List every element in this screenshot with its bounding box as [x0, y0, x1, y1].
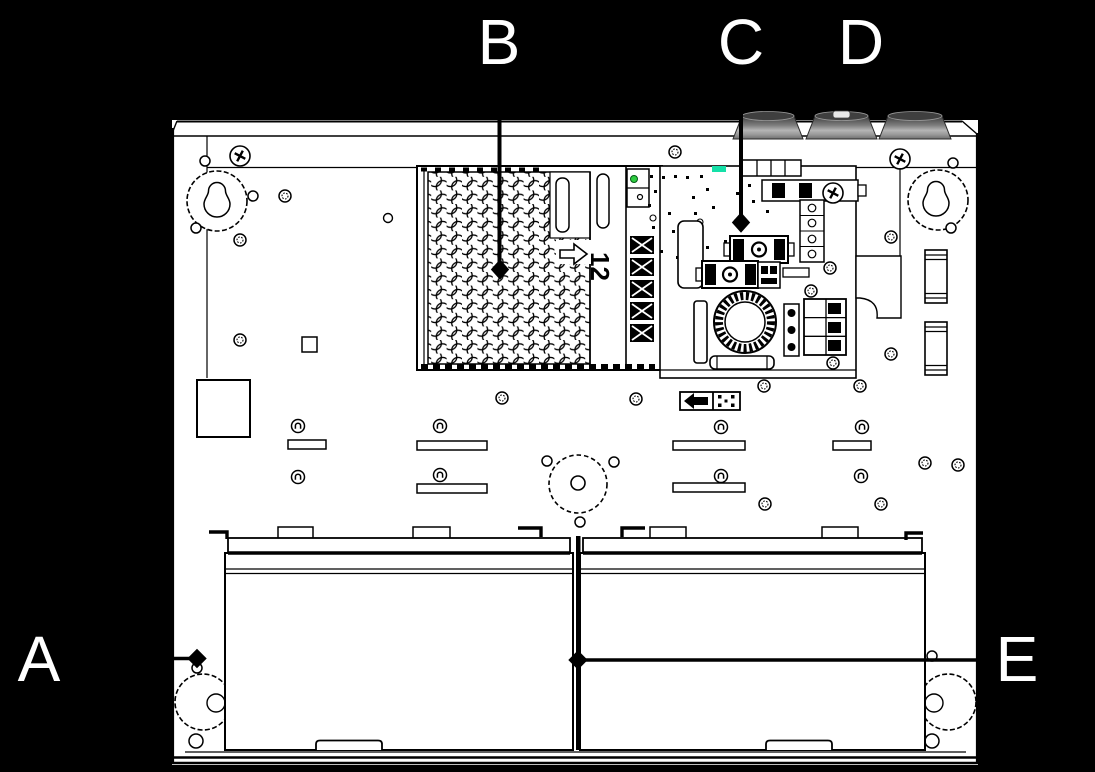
hole-icon	[946, 223, 956, 233]
screw-icon	[234, 334, 246, 346]
standoff-screw-icon	[856, 421, 869, 434]
standoff-screw-icon	[715, 470, 728, 483]
callout-label-a: A	[18, 627, 61, 691]
square-cutout-small	[302, 337, 317, 352]
pcb-teal-mark	[712, 166, 726, 172]
square-cutout-large	[197, 380, 250, 437]
standoff-screw-icon	[292, 471, 305, 484]
hole-icon	[200, 156, 210, 166]
power-led-icon	[631, 176, 638, 183]
standoff-screw-icon	[855, 470, 868, 483]
hole-icon	[542, 456, 552, 466]
relay-1	[724, 236, 794, 263]
psu-voltage-label: 12	[585, 252, 615, 281]
screw-icon	[827, 357, 839, 369]
psu-status-connector	[627, 169, 649, 207]
enclosure-diagram-stage: 12	[0, 0, 1095, 772]
toroid-inductor	[714, 291, 776, 353]
screw-icon	[823, 183, 843, 203]
screw-icon	[952, 459, 964, 471]
control-pcb	[648, 160, 866, 378]
screw-icon	[885, 231, 897, 243]
standoff-screw-icon	[292, 420, 305, 433]
conduit-knockouts	[733, 111, 951, 139]
screw-icon	[279, 190, 291, 202]
screw-icon	[854, 380, 866, 392]
power-supply-unit: 12	[417, 166, 662, 370]
hole-icon	[575, 517, 585, 527]
screw-icon	[759, 498, 771, 510]
vent-slot	[556, 178, 569, 232]
standoff-screw-icon	[434, 469, 447, 482]
screw-icon	[758, 380, 770, 392]
callout-label-e: E	[996, 627, 1039, 691]
standoff-screw-icon	[434, 420, 447, 433]
hole-icon	[948, 158, 958, 168]
screw-icon	[824, 262, 836, 274]
screw-icon	[919, 457, 931, 469]
standoff-screw-icon	[715, 421, 728, 434]
screw-icon	[890, 149, 910, 169]
screw-icon	[234, 234, 246, 246]
enclosure-line-art: 12	[0, 0, 1095, 772]
hole-icon	[191, 223, 201, 233]
relay-2	[696, 261, 758, 288]
input-terminal-strip	[800, 200, 824, 262]
vent-slot	[597, 174, 609, 228]
callout-label-b: B	[478, 10, 521, 74]
screw-icon	[496, 392, 508, 404]
battery-divider-wire	[576, 536, 581, 750]
hole-icon	[609, 457, 619, 467]
spare-fuse-lower	[925, 322, 947, 375]
callout-label-c: C	[718, 10, 764, 74]
screw-icon	[885, 348, 897, 360]
battery-foot-tab	[316, 741, 382, 751]
screw-icon	[669, 146, 681, 158]
screw-icon	[805, 285, 817, 297]
screw-icon	[230, 146, 250, 166]
screw-icon	[875, 498, 887, 510]
screw-icon	[630, 393, 642, 405]
output-terminal-block	[804, 299, 846, 355]
battery-left	[225, 527, 573, 750]
callout-label-d: D	[838, 10, 884, 74]
psu-terminal-block	[630, 236, 654, 342]
battery-foot-tab	[766, 741, 832, 751]
cable-clamp-arrow-plate	[680, 392, 740, 410]
battery-right	[580, 527, 925, 750]
hole-icon	[248, 191, 258, 201]
spare-fuse-upper	[925, 250, 947, 303]
hole-icon	[384, 214, 393, 223]
